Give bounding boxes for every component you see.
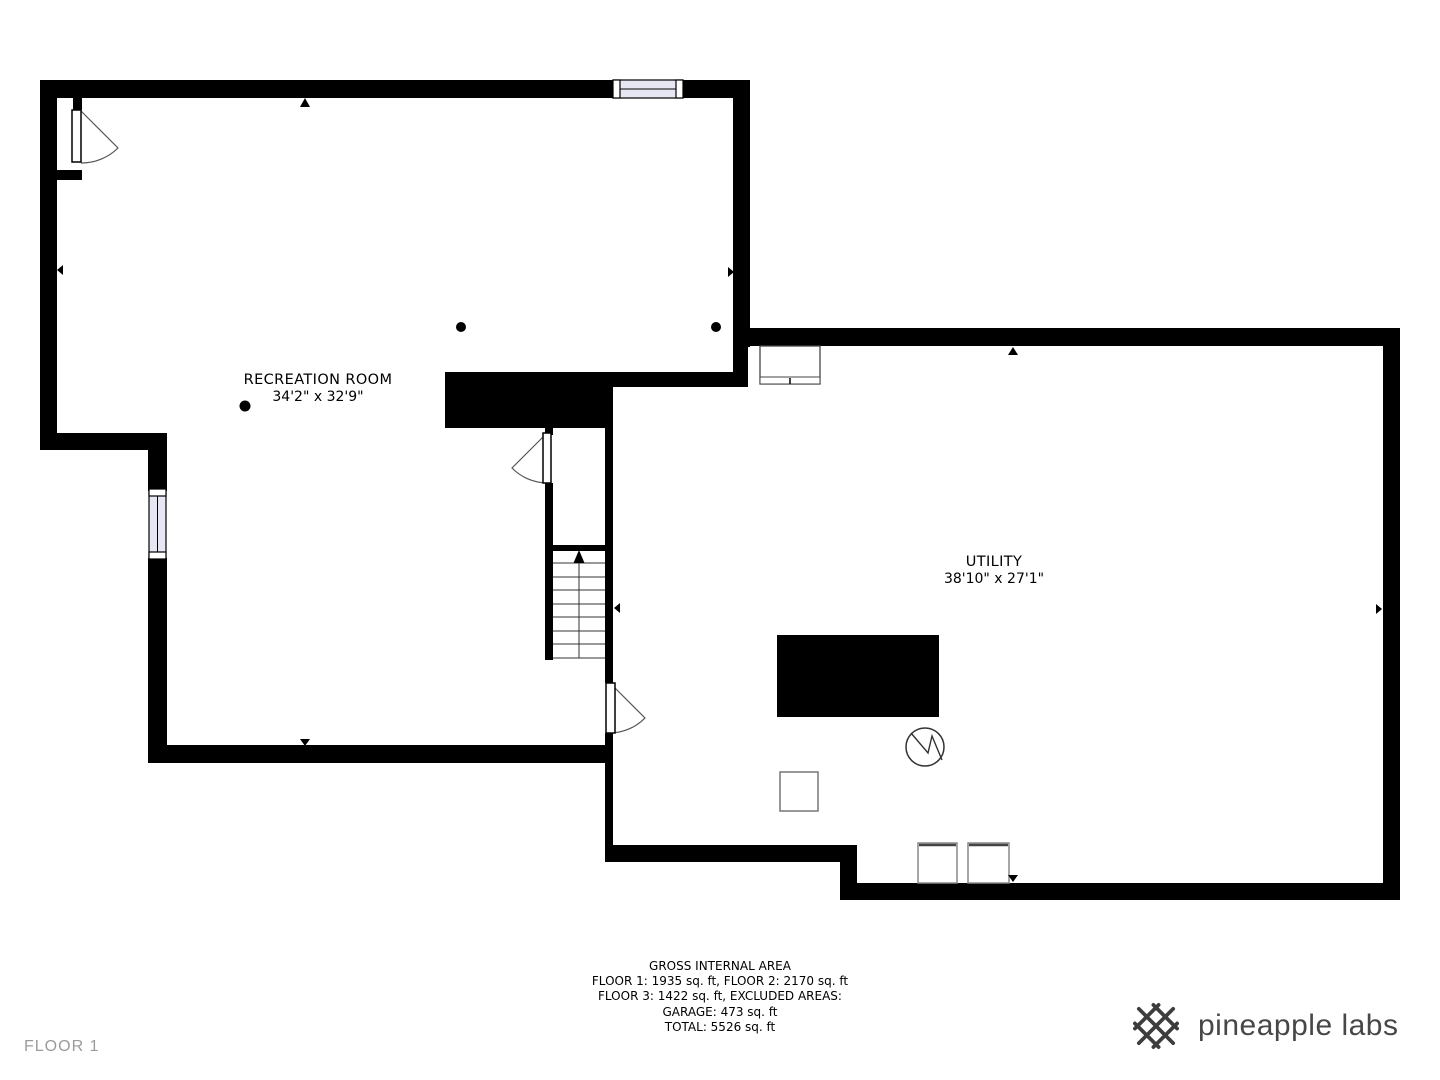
utility-small-square-fixture: [780, 772, 818, 811]
staircase: [553, 550, 605, 658]
pump-symbol-icon: [906, 728, 944, 766]
utility-counter-fixture: [760, 346, 820, 384]
column-dot: [711, 322, 721, 332]
wall-segment: [733, 80, 750, 347]
branding: pineapple labs: [1128, 995, 1399, 1057]
pineapple-lattice-icon: [1128, 995, 1184, 1057]
room-dimensions: 38'10" x 27'1": [844, 571, 1144, 587]
wall-marker-icon: [57, 265, 63, 275]
column-dot: [456, 322, 466, 332]
wall-segment: [605, 845, 857, 862]
wall-marker-icon: [614, 603, 620, 613]
door-utility: [606, 683, 645, 733]
wall-segment: [40, 433, 167, 450]
wall-segment: [40, 80, 613, 98]
window-top: [613, 80, 683, 98]
area-summary: GROSS INTERNAL AREA FLOOR 1: 1935 sq. ft…: [470, 959, 970, 1035]
room-name: RECREATION ROOM: [168, 372, 468, 388]
wall-segment: [148, 558, 167, 763]
door-jamb: [57, 170, 82, 180]
utility-solid-block: [777, 635, 939, 717]
wall-marker-icon: [300, 739, 310, 746]
room-name: UTILITY: [844, 554, 1144, 570]
room-label-recreation: RECREATION ROOM 34'2" x 32'9": [168, 372, 468, 405]
room-dimensions: 34'2" x 32'9": [168, 389, 468, 405]
floor-plan-page: RECREATION ROOM 34'2" x 32'9" UTILITY 38…: [0, 0, 1440, 1080]
wall-markers: [57, 98, 1382, 882]
wall-segment: [148, 745, 613, 763]
area-summary-line: FLOOR 1: 1935 sq. ft, FLOOR 2: 2170 sq. …: [470, 974, 970, 989]
wall-segment: [605, 387, 613, 683]
area-summary-line: FLOOR 3: 1422 sq. ft, EXCLUDED AREAS:: [470, 989, 970, 1004]
window-left: [149, 489, 166, 559]
wall-marker-icon: [1008, 347, 1018, 355]
area-summary-line: GARAGE: 473 sq. ft: [470, 1005, 970, 1020]
room-label-utility: UTILITY 38'10" x 27'1": [844, 554, 1144, 587]
walls: [40, 80, 1400, 900]
wall-segment: [743, 328, 1400, 346]
area-summary-line: TOTAL: 5526 sq. ft: [470, 1020, 970, 1035]
wall-marker-icon: [300, 98, 310, 107]
appliance-right: [968, 843, 1009, 883]
floor-plan-drawing: [0, 0, 1440, 1080]
wall-segment: [840, 883, 1400, 900]
stairs-up-arrow-icon: [574, 550, 585, 563]
appliance-left: [918, 843, 957, 883]
wall-segment: [605, 733, 613, 862]
wall-marker-icon: [1376, 604, 1382, 614]
wall-segment: [545, 483, 553, 660]
door-stair-landing: [512, 433, 551, 483]
floor-label: FLOOR 1: [24, 1038, 99, 1056]
wall-segment: [1383, 328, 1400, 900]
wall-segment: [612, 372, 748, 387]
wall-segment: [40, 80, 57, 450]
door-entry-top-left: [72, 110, 118, 163]
wall-segment: [148, 433, 167, 491]
wall-segment: [445, 372, 612, 428]
door-jamb: [73, 98, 82, 110]
brand-name: pineapple labs: [1198, 1009, 1399, 1043]
area-summary-title: GROSS INTERNAL AREA: [470, 959, 970, 974]
